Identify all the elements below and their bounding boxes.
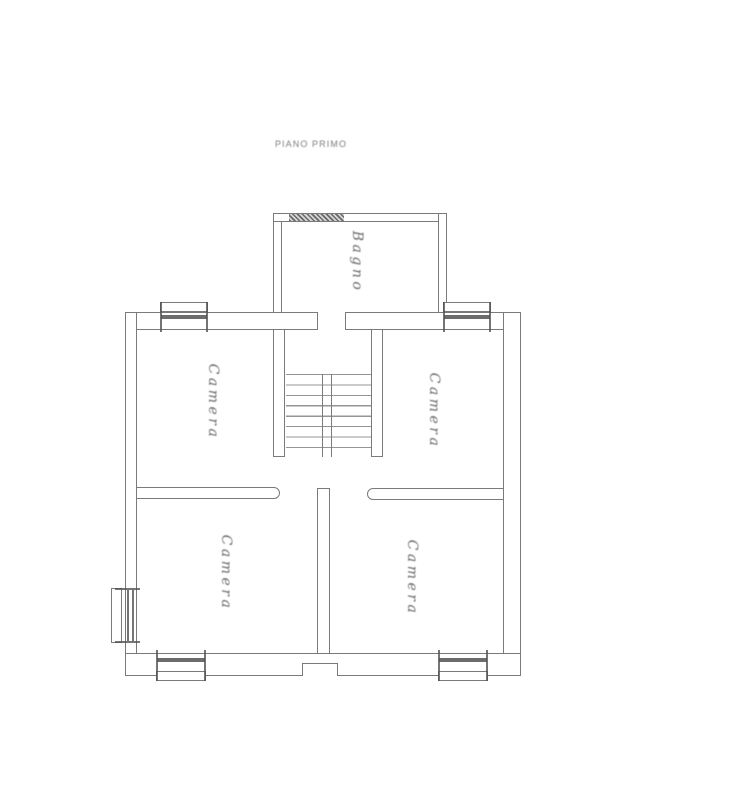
bottom-wall-notch — [302, 663, 338, 676]
window-left-side — [111, 588, 140, 643]
room-label-camera-top-right: Camera — [423, 366, 445, 456]
room-label-camera-bottom-left: Camera — [215, 528, 237, 618]
window-bottom-left — [156, 650, 206, 681]
room-label-camera-bottom-right: Camera — [401, 533, 423, 623]
window-top-right — [443, 302, 491, 332]
stairwell-left-wall — [273, 329, 285, 457]
plan-title: PIANO PRIMO — [265, 139, 357, 149]
window-jamb — [156, 650, 158, 681]
window-sill — [438, 671, 488, 681]
window-jamb — [204, 650, 206, 681]
window-glass-line — [132, 590, 134, 641]
window-jamb — [438, 650, 440, 681]
bagno-window-hatch — [289, 214, 344, 221]
scanned-page: PIANO PRIMO — [0, 0, 749, 800]
window-bottom-right — [438, 650, 488, 681]
exterior-right-wall — [503, 312, 521, 676]
window-glass-line — [444, 315, 490, 319]
window-jamb — [443, 302, 445, 332]
room-label-camera-top-left: Camera — [202, 357, 224, 447]
bedroom-divider-wall — [317, 488, 330, 655]
window-jamb — [489, 302, 491, 332]
window-sill — [156, 671, 206, 681]
room-label-bagno: Bagno — [346, 222, 368, 302]
floor-plan: PIANO PRIMO — [0, 0, 749, 800]
window-sill — [111, 588, 122, 643]
window-jamb — [206, 302, 208, 332]
exterior-top-wall-right — [345, 312, 521, 330]
window-glass-line — [157, 658, 205, 662]
window-top-left — [160, 302, 208, 332]
window-sill — [443, 302, 491, 312]
bagno-right-wall — [438, 213, 447, 313]
window-glass-line — [439, 658, 487, 662]
exterior-top-wall-left — [125, 312, 318, 330]
window-jamb — [160, 302, 162, 332]
window-glass-line — [127, 590, 129, 641]
hall-wall-right — [367, 488, 506, 500]
window-jamb — [486, 650, 488, 681]
bagno-left-wall — [273, 213, 282, 313]
hall-wall-left — [134, 487, 280, 499]
stairs-stringer — [322, 374, 332, 457]
window-glass-line — [161, 315, 207, 319]
window-jamb — [115, 588, 140, 590]
window-sill — [160, 302, 208, 312]
stairwell-right-wall — [371, 329, 383, 457]
window-jamb — [115, 641, 140, 643]
